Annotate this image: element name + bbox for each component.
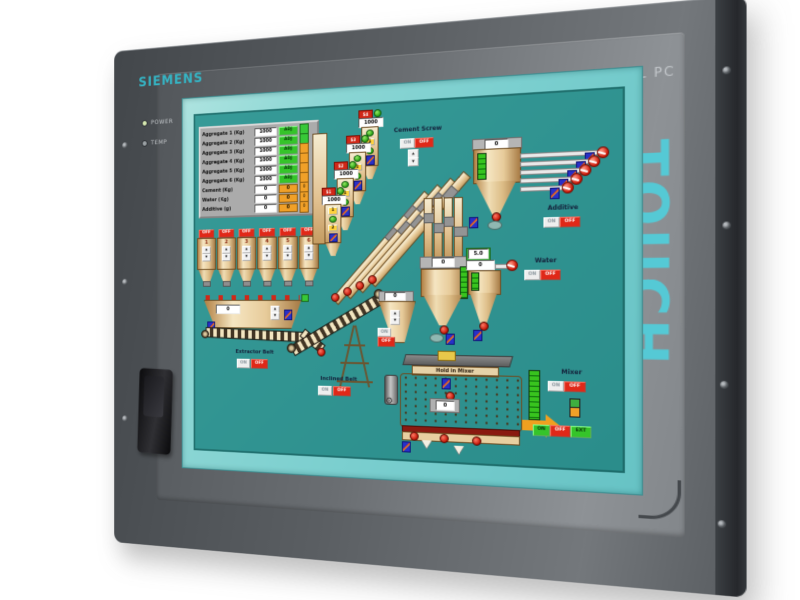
discharge-arrow-icon bbox=[454, 446, 464, 455]
bin-number: 4 bbox=[265, 238, 268, 246]
tower-bar bbox=[344, 344, 365, 346]
row-value-field[interactable]: 1000 bbox=[254, 146, 276, 156]
pulley-icon bbox=[287, 343, 296, 353]
row-value-field[interactable]: 1000 bbox=[254, 136, 276, 146]
bin-up-button[interactable]: ▲ bbox=[283, 245, 292, 253]
motor-icon bbox=[341, 207, 349, 217]
additive-on-button[interactable]: ON bbox=[543, 217, 559, 228]
aggregate-bin: OFF5▲▼ bbox=[278, 227, 298, 286]
drop-tube bbox=[434, 198, 443, 259]
bin-number: 5 bbox=[286, 237, 289, 245]
mixer-off-button[interactable]: OFF bbox=[564, 381, 586, 392]
mixer-state-indicator bbox=[569, 407, 580, 418]
mixer-value[interactable]: 0 bbox=[436, 400, 455, 411]
water-value[interactable]: 0 bbox=[466, 260, 495, 271]
adj-button[interactable]: ADJ bbox=[279, 135, 298, 145]
status-square-icon bbox=[301, 294, 308, 302]
bin-number: 3 bbox=[245, 238, 248, 246]
mixer-ctrl-ext-button[interactable]: EXT bbox=[571, 426, 592, 439]
drop-tube bbox=[444, 197, 453, 258]
inclined-belt-off-button[interactable]: OFF bbox=[333, 386, 351, 396]
adj-button[interactable]: ADJ bbox=[279, 164, 298, 174]
row-value-field[interactable]: 0 bbox=[254, 194, 276, 203]
water-on-button[interactable]: ON bbox=[524, 270, 540, 281]
bin-down-button[interactable]: ▼ bbox=[283, 253, 292, 261]
weigh-hopper-cone bbox=[421, 295, 465, 326]
extractor-belt bbox=[205, 327, 307, 343]
hopper-down-button[interactable]: ▼ bbox=[271, 312, 280, 320]
inclined-belt-label: Inclined Belt bbox=[309, 376, 369, 384]
bin-off-button[interactable]: OFF bbox=[199, 229, 214, 238]
row-total-cell: 0 bbox=[279, 193, 298, 202]
recipe-table: Aggregate 1 (Kg)1000ADJ Aggregate 2 (Kg)… bbox=[199, 120, 319, 219]
drop-tube bbox=[424, 198, 433, 259]
cement-screw-on-button[interactable]: ON bbox=[400, 138, 415, 149]
hmi-screen[interactable]: Aggregate 1 (Kg)1000ADJ Aggregate 2 (Kg)… bbox=[194, 86, 625, 473]
motor-icon bbox=[550, 187, 560, 199]
panel-pc-device: SIEMENS POWER TEMP SIMATIC PANEL PC TOUC… bbox=[114, 0, 746, 598]
bin-off-button[interactable]: OFF bbox=[239, 228, 255, 237]
bin-down-button[interactable]: ▼ bbox=[242, 253, 251, 261]
valve-icon bbox=[410, 432, 419, 441]
motor-icon bbox=[446, 334, 455, 345]
valve-icon bbox=[317, 348, 325, 357]
bin-up-button[interactable]: ▲ bbox=[262, 245, 271, 253]
water-off-button[interactable]: OFF bbox=[540, 270, 560, 281]
bin-number: 6 bbox=[307, 237, 311, 245]
aggregate-bin: OFF2▲▼ bbox=[217, 229, 236, 287]
mixer-label: Mixer bbox=[550, 368, 594, 376]
bin-up-button[interactable]: ▲ bbox=[242, 246, 251, 254]
screw-icon bbox=[122, 279, 128, 285]
bin-up-button[interactable]: ▲ bbox=[304, 245, 313, 253]
row-label: Aggregate 5 (Kg) bbox=[202, 167, 254, 175]
cement-screw-off-button[interactable]: OFF bbox=[415, 137, 434, 148]
additive-label: Additive bbox=[537, 203, 589, 212]
adj-button[interactable]: ADJ bbox=[279, 145, 298, 155]
level-strip bbox=[460, 266, 468, 299]
screw-icon bbox=[122, 142, 128, 149]
temp-led-row: TEMP bbox=[142, 138, 167, 147]
adj-button[interactable]: ADJ bbox=[279, 154, 298, 164]
motor-icon bbox=[442, 378, 451, 389]
adj-button[interactable]: ADJ bbox=[279, 125, 298, 135]
screw-icon bbox=[718, 520, 726, 528]
row-label: Aggregate 6 (Kg) bbox=[202, 177, 254, 185]
silo-select-button[interactable]: 1 bbox=[328, 207, 337, 215]
row-total-cell: 0 bbox=[279, 183, 298, 192]
motor-icon bbox=[473, 330, 482, 341]
water-flow-value[interactable]: 5.0 bbox=[468, 249, 489, 260]
temp-led-icon bbox=[142, 140, 148, 147]
row-label: Water (Kg) bbox=[202, 196, 254, 203]
pulley-icon bbox=[201, 330, 209, 339]
silo-select-button[interactable]: 2 bbox=[328, 224, 337, 232]
row-label: Cement (Kg) bbox=[202, 187, 254, 195]
motor-icon bbox=[469, 217, 478, 228]
motor-icon bbox=[284, 310, 292, 321]
bin-off-button[interactable]: OFF bbox=[259, 228, 275, 237]
row-value-field[interactable]: 1000 bbox=[254, 127, 276, 137]
bin-number: 1 bbox=[205, 239, 208, 247]
valve-icon bbox=[472, 436, 481, 446]
mixer-on-button[interactable]: ON bbox=[548, 381, 564, 392]
mixer-top-box bbox=[438, 351, 456, 361]
level-strip bbox=[477, 153, 486, 180]
row-label: Aggregate 4 (Kg) bbox=[202, 158, 254, 166]
bin-off-button[interactable]: OFF bbox=[280, 227, 296, 236]
mixer-level-strip bbox=[529, 370, 541, 420]
motor-icon bbox=[366, 156, 375, 166]
additive-hopper-cone bbox=[473, 181, 519, 215]
bin-down-button[interactable]: ▼ bbox=[304, 252, 313, 260]
aggregate-bin: OFF3▲▼ bbox=[237, 228, 256, 286]
feed-hopper-value[interactable]: 0 bbox=[384, 292, 405, 301]
hopper-marker-row bbox=[206, 295, 300, 300]
mixer-ctrl-on-button[interactable]: ON bbox=[533, 424, 550, 436]
tube-band bbox=[454, 226, 468, 237]
screw-icon bbox=[122, 415, 128, 422]
bin-up-button[interactable]: ▲ bbox=[202, 246, 211, 254]
scene: SIEMENS POWER TEMP SIMATIC PANEL PC TOUC… bbox=[0, 0, 800, 600]
drop-tube bbox=[454, 197, 463, 258]
cement-screw-label: Cement Screw bbox=[388, 124, 447, 134]
extractor-belt-label: Extractor Belt bbox=[218, 349, 293, 356]
row-value-field[interactable]: 0 bbox=[254, 203, 276, 212]
valve-icon bbox=[356, 281, 365, 290]
gear-icon: ⚙ bbox=[385, 397, 393, 407]
extractor-off-button[interactable]: OFF bbox=[251, 359, 268, 369]
power-led-icon bbox=[142, 119, 148, 126]
row-label: Additive (g) bbox=[202, 206, 254, 213]
bin-down-button[interactable]: ▼ bbox=[222, 254, 231, 262]
feed-off-button[interactable]: OFF bbox=[378, 337, 395, 347]
inclined-belt-on-button[interactable]: ON bbox=[318, 386, 332, 396]
mixer-ctrl-off-button[interactable]: OFF bbox=[550, 425, 571, 437]
water-hopper-cone bbox=[468, 293, 499, 324]
mixer-drum bbox=[400, 373, 522, 432]
bin-down-button[interactable]: ▼ bbox=[262, 253, 271, 261]
discharge-arrow-icon bbox=[422, 440, 432, 449]
motor-icon bbox=[329, 233, 337, 242]
adj-button[interactable]: ADJ bbox=[279, 174, 298, 183]
cement-silo: S410001 bbox=[358, 109, 384, 111]
row-value-field[interactable]: 1000 bbox=[254, 165, 276, 175]
extractor-on-button[interactable]: ON bbox=[237, 359, 250, 369]
valve-icon bbox=[343, 287, 352, 296]
motor-icon bbox=[402, 441, 411, 452]
power-led-label: POWER bbox=[151, 117, 173, 126]
aggregate-bin: OFF1▲▼ bbox=[197, 229, 216, 286]
stylus-holder[interactable] bbox=[137, 368, 173, 455]
row-value-field[interactable]: 1000 bbox=[254, 175, 276, 185]
row-indicator: 0 bbox=[300, 201, 309, 213]
additive-off-button[interactable]: OFF bbox=[560, 216, 581, 227]
level-ok-icon bbox=[329, 216, 336, 223]
bin-number: 2 bbox=[225, 239, 228, 247]
bin-off-button[interactable]: OFF bbox=[219, 229, 235, 238]
level-strip bbox=[471, 272, 479, 290]
extractor-hopper-value[interactable]: 0 bbox=[216, 305, 240, 315]
aggregate-bin: OFF4▲▼ bbox=[257, 228, 277, 287]
water-label: Water bbox=[526, 257, 565, 265]
pump-icon bbox=[562, 182, 574, 194]
screw-down-button[interactable]: ▼ bbox=[408, 157, 419, 167]
screw-icon bbox=[720, 381, 728, 389]
outlet-icon bbox=[488, 220, 503, 230]
row-value-field[interactable]: 0 bbox=[254, 184, 276, 193]
bin-up-button[interactable]: ▲ bbox=[222, 246, 231, 254]
bin-down-button[interactable]: ▼ bbox=[202, 254, 211, 262]
row-total-cell: 0 bbox=[279, 203, 298, 212]
outlet-icon bbox=[430, 333, 444, 342]
temp-led-label: TEMP bbox=[151, 138, 167, 146]
valve-icon bbox=[440, 434, 449, 444]
motor-icon bbox=[353, 181, 362, 191]
row-value-field[interactable]: 1000 bbox=[254, 155, 276, 165]
pump-icon bbox=[506, 260, 518, 272]
valve-icon bbox=[368, 275, 377, 284]
device-side-edge bbox=[715, 0, 746, 598]
feed-on-button[interactable]: ON bbox=[378, 328, 392, 337]
hopper-down-button[interactable]: ▼ bbox=[390, 317, 400, 325]
weigh-hopper-value[interactable]: 0 bbox=[432, 257, 455, 267]
valve-icon bbox=[331, 293, 339, 302]
